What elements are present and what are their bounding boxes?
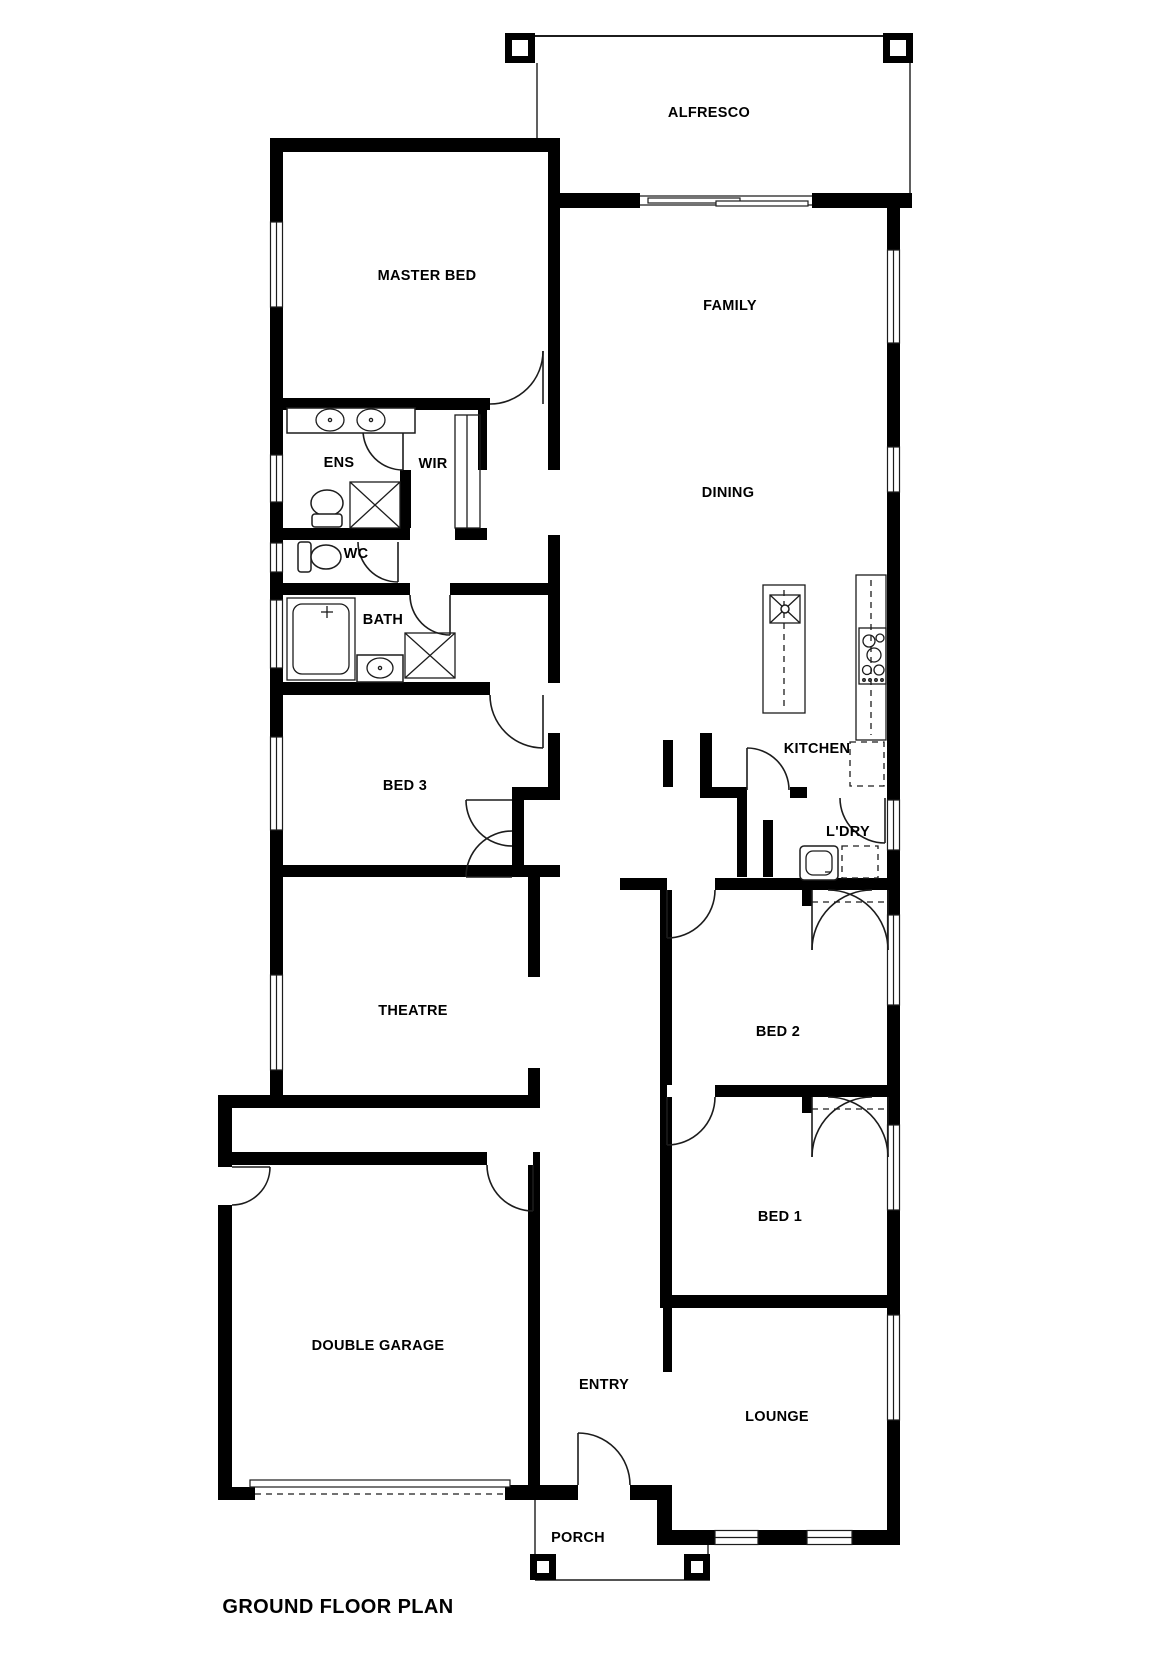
room-label-wc: WC bbox=[344, 546, 369, 562]
sink-icon bbox=[770, 595, 800, 623]
shower-icon bbox=[405, 633, 455, 678]
door-bed3 bbox=[490, 695, 543, 748]
door-ens bbox=[363, 430, 403, 470]
pillar-icon bbox=[505, 33, 535, 63]
door-garage-entry bbox=[487, 1165, 533, 1211]
room-label-wir: WIR bbox=[418, 456, 447, 472]
floor-plan: ALFRESCO MASTER BED FAMILY ENS WIR DININ… bbox=[0, 0, 1170, 1654]
washer-icon bbox=[842, 846, 878, 878]
door-bed1 bbox=[667, 1097, 715, 1145]
robe-doors-bed1 bbox=[812, 1097, 888, 1157]
room-label-entry: ENTRY bbox=[579, 1377, 629, 1393]
room-label-master-bed: MASTER BED bbox=[378, 268, 477, 284]
pillar-icon bbox=[684, 1554, 710, 1580]
pillar-icon bbox=[530, 1554, 556, 1580]
room-label-ldry: L'DRY bbox=[826, 824, 870, 840]
toilet-icon bbox=[311, 490, 343, 527]
door-bed2 bbox=[667, 890, 715, 938]
kitchen-bench bbox=[850, 575, 886, 786]
room-label-alfresco: ALFRESCO bbox=[668, 105, 750, 121]
door-garage-side bbox=[232, 1167, 270, 1205]
wardrobe-shelf-icon bbox=[455, 415, 480, 528]
door-bath bbox=[410, 595, 450, 635]
kitchen-island bbox=[763, 585, 805, 713]
laundry-sink-icon bbox=[800, 846, 838, 880]
shower-icon bbox=[350, 482, 400, 528]
room-label-family: FAMILY bbox=[703, 298, 757, 314]
room-label-porch: PORCH bbox=[551, 1530, 605, 1546]
cooktop-icon bbox=[859, 628, 886, 684]
room-label-bed3: BED 3 bbox=[383, 778, 427, 794]
garage-door-icon bbox=[250, 1480, 510, 1494]
walls bbox=[218, 138, 912, 1545]
room-label-garage: DOUBLE GARAGE bbox=[312, 1338, 445, 1354]
vanity-basin-icon bbox=[287, 408, 415, 433]
room-label-theatre: THEATRE bbox=[378, 1003, 448, 1019]
pillar-icon bbox=[883, 33, 913, 63]
toilet-icon bbox=[298, 542, 341, 572]
room-label-bath: BATH bbox=[363, 612, 403, 628]
fixtures bbox=[287, 408, 886, 880]
door-front bbox=[578, 1433, 630, 1485]
door-pantry bbox=[747, 748, 789, 790]
bathtub-icon bbox=[287, 598, 355, 680]
door-master bbox=[490, 351, 543, 404]
room-label-bed1: BED 1 bbox=[758, 1209, 802, 1225]
room-label-kitchen: KITCHEN bbox=[784, 741, 851, 757]
room-label-lounge: LOUNGE bbox=[745, 1409, 809, 1425]
sliding-door-icon bbox=[640, 196, 812, 206]
room-label-bed2: BED 2 bbox=[756, 1024, 800, 1040]
room-label-ens: ENS bbox=[324, 455, 355, 471]
floor-plan-page: ALFRESCO MASTER BED FAMILY ENS WIR DININ… bbox=[0, 0, 1170, 1654]
plan-title: GROUND FLOOR PLAN bbox=[222, 1596, 453, 1618]
room-label-dining: DINING bbox=[702, 485, 755, 501]
vanity-basin-icon bbox=[357, 655, 403, 682]
robe-doors-bed2 bbox=[812, 890, 888, 950]
